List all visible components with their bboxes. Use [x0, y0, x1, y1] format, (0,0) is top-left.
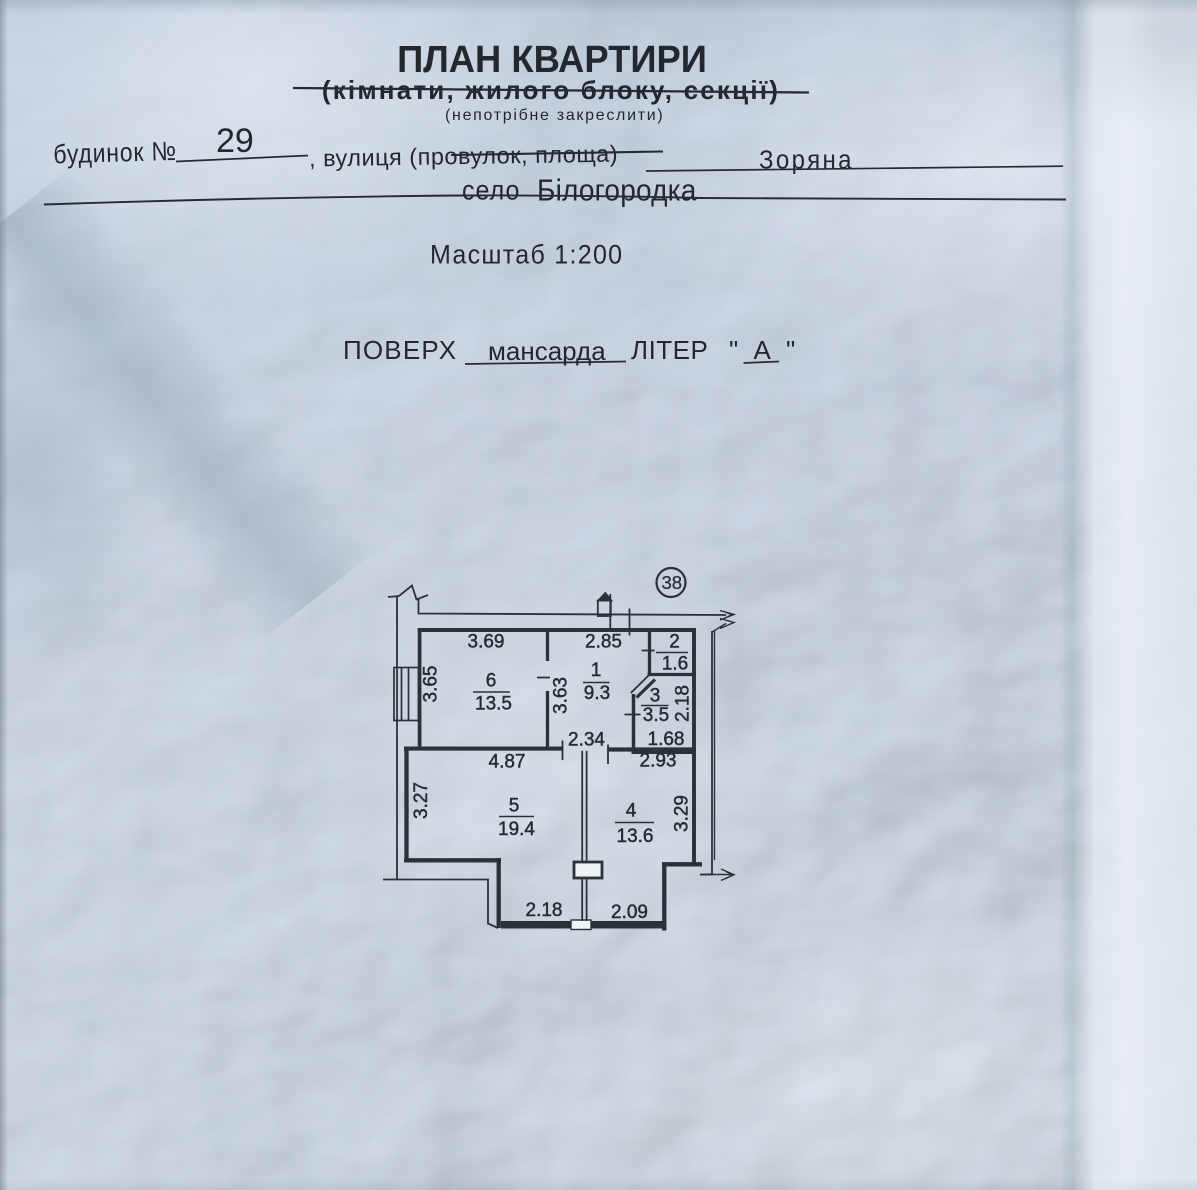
svg-text:6: 6	[486, 671, 497, 692]
svg-text:2.34: 2.34	[568, 730, 605, 751]
svg-text:4: 4	[626, 801, 637, 822]
svg-text:1.6: 1.6	[662, 654, 688, 675]
svg-text:2.18: 2.18	[526, 900, 563, 921]
svg-text:2.85: 2.85	[585, 632, 622, 653]
svg-text:5: 5	[509, 796, 520, 817]
svg-text:2.93: 2.93	[640, 751, 677, 772]
svg-text:1.68: 1.68	[648, 729, 685, 750]
svg-text:38: 38	[662, 572, 683, 593]
svg-text:4.87: 4.87	[489, 752, 526, 773]
svg-text:3.5: 3.5	[643, 705, 669, 726]
svg-text:2.18: 2.18	[673, 685, 694, 722]
svg-text:3.69: 3.69	[468, 632, 505, 653]
svg-text:9.3: 9.3	[584, 683, 610, 704]
svg-text:2.09: 2.09	[611, 902, 648, 923]
svg-text:3: 3	[650, 686, 661, 707]
svg-text:19.4: 19.4	[498, 819, 535, 840]
svg-text:3.27: 3.27	[411, 782, 432, 819]
svg-text:13.6: 13.6	[617, 826, 654, 847]
svg-text:13.5: 13.5	[475, 694, 512, 715]
svg-text:2: 2	[669, 632, 680, 653]
svg-text:3.65: 3.65	[421, 666, 442, 703]
svg-text:3.29: 3.29	[672, 795, 693, 832]
svg-text:3.63: 3.63	[551, 677, 572, 714]
svg-text:1: 1	[591, 660, 602, 681]
